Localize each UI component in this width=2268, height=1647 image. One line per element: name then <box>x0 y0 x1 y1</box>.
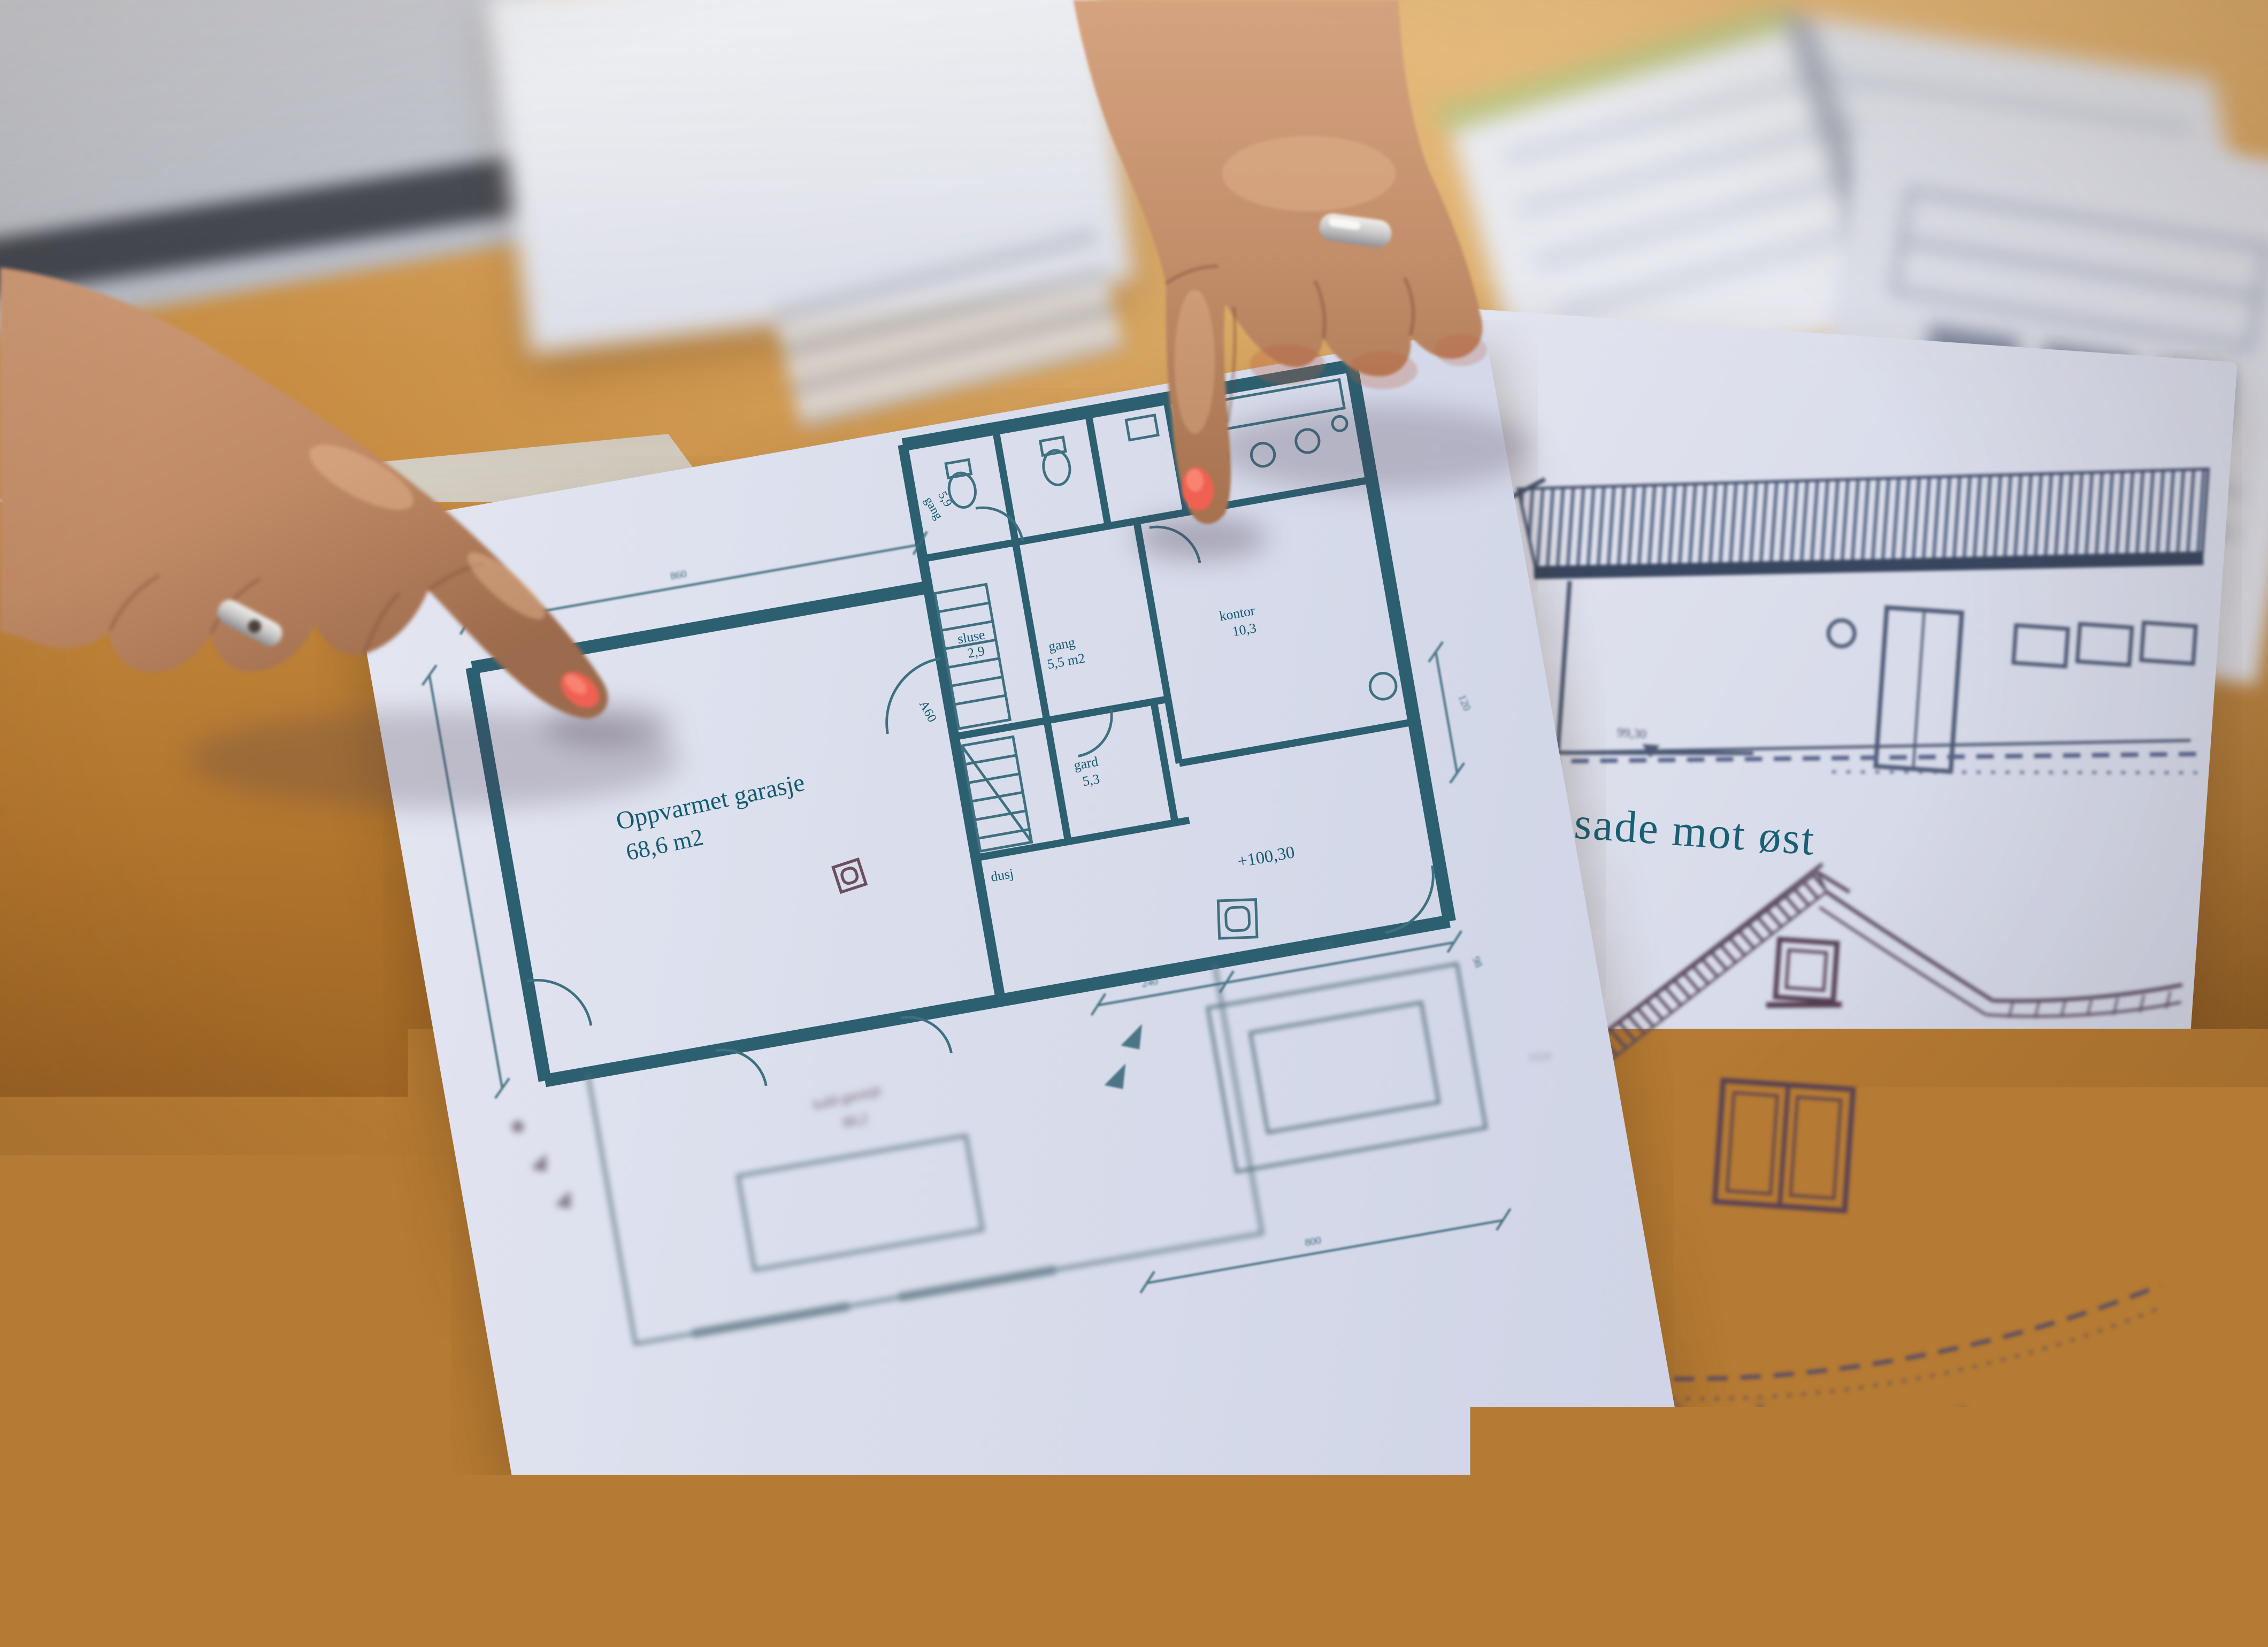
hands-overlay <box>0 0 2268 1516</box>
photo-of-architect-plans: 107 <box>0 0 2268 1516</box>
left-hand-skin <box>0 267 608 719</box>
left-hand <box>0 267 608 719</box>
